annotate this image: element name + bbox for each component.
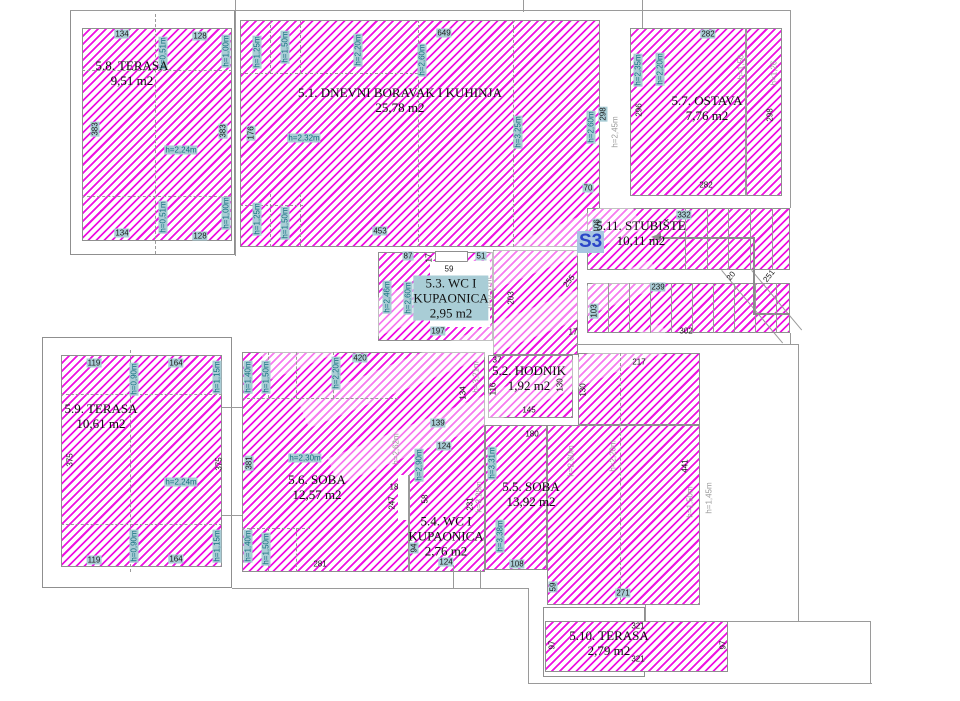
dimension-label: 128 <box>192 32 207 41</box>
height-label: h=1,40m <box>244 529 253 562</box>
room-title-line: 12,57 m2 <box>288 487 345 502</box>
room-title-line: 5.10. TERASA <box>569 628 649 643</box>
dimension-label: 87 <box>403 252 414 261</box>
height-label: h=3,28m <box>475 481 484 512</box>
plan-line <box>692 283 693 333</box>
plan-line <box>300 20 301 73</box>
height-label: h=3,21m <box>472 361 481 392</box>
height-label: h=1,40m <box>244 360 253 393</box>
plan-line <box>222 407 242 408</box>
plan-line <box>232 588 528 589</box>
dimension-label: 298 <box>599 106 608 121</box>
room-title-line: KUPAONICA <box>408 529 483 544</box>
dimension-label: 296 <box>635 103 644 116</box>
room-title: 5.7. OSTAVA7,76 m2 <box>671 93 742 123</box>
dimension-label: 17 <box>569 328 578 337</box>
plan-line <box>707 208 708 270</box>
plan-line <box>296 352 297 398</box>
room-title-line: 5.3. WC I <box>413 276 488 291</box>
height-label: h=2,62m <box>392 433 401 464</box>
plan-line <box>222 515 242 516</box>
height-label: h=2,46m <box>383 280 392 313</box>
dimension-label: 139 <box>430 419 445 428</box>
room-title-line: 5.2. HODNIK <box>492 363 566 378</box>
plan-line <box>296 528 297 572</box>
height-label: h=3,25m <box>514 115 523 148</box>
room-title-line: 9,51 m2 <box>95 73 168 88</box>
dimension-label: 17 <box>425 254 434 263</box>
room-title: 5.5. SOBA13,92 m2 <box>502 479 559 509</box>
plan-line <box>798 344 799 621</box>
plan-line <box>745 28 747 196</box>
dimension-label: 383 <box>219 123 228 138</box>
room-title-line: 2,79 m2 <box>569 643 649 658</box>
white-patch <box>398 475 408 520</box>
plan-line <box>645 605 646 621</box>
plan-line <box>753 237 755 313</box>
dimension-label: 298 <box>766 108 775 121</box>
dimension-label: 302 <box>679 327 692 336</box>
dimension-label: 18 <box>390 483 399 492</box>
room-title-line: 5.9. TERASA <box>64 401 137 416</box>
dimension-label: 51 <box>476 252 487 261</box>
height-label: h=1,45m <box>705 482 714 513</box>
dimension-label: 130 <box>579 383 588 396</box>
plan-line <box>82 196 232 197</box>
room-title: 5.1. DNEVNI BORAVAK I KUHINJA25,78 m2 <box>298 85 502 115</box>
height-label: h=2,20m <box>354 33 363 66</box>
plan-line <box>61 524 222 525</box>
dimension-label: 20 <box>725 270 738 283</box>
plan-line <box>523 0 524 12</box>
dimension-label: 217 <box>632 358 645 367</box>
plan-line <box>750 208 751 270</box>
plan-line <box>608 283 609 333</box>
plan-line <box>728 208 729 270</box>
room-title-line: 2,95 m2 <box>413 306 488 321</box>
dimension-label: 124 <box>438 558 453 567</box>
height-label: h=2,32m <box>287 134 320 143</box>
room-title-line: 5.8. TERASA <box>95 58 168 73</box>
room-title-line: 10,11 m2 <box>596 233 685 248</box>
plan-line <box>642 0 643 28</box>
white-patch <box>435 251 468 262</box>
dimension-label: 134 <box>114 30 129 39</box>
room-title-line: 5.1. DNEVNI BORAVAK I KUHINJA <box>298 85 502 100</box>
dimension-label: 231 <box>466 497 475 510</box>
plan-line <box>753 313 790 315</box>
height-label: h=2,60m <box>567 445 576 476</box>
plan-line <box>270 194 271 247</box>
room-title-line: 10,61 m2 <box>64 416 137 431</box>
height-label: h=1,50m <box>281 206 290 239</box>
height-label: h=2,60m <box>587 110 596 143</box>
height-label: h=0,90m <box>130 529 139 562</box>
dimension-label: 381 <box>245 455 254 470</box>
room-title: 5.2. HODNIK1,92 m2 <box>492 363 566 393</box>
height-label: h=1,50m <box>686 486 695 517</box>
plan-line <box>270 20 271 73</box>
height-label: h=2,20m <box>332 356 341 389</box>
dimension-label: 649 <box>436 29 451 38</box>
dimension-label: 271 <box>615 589 630 598</box>
dimension-label: 134 <box>114 229 129 238</box>
room-title: 5.6. SOBA12,57 m2 <box>288 472 345 502</box>
dimension-label: 441 <box>681 459 690 472</box>
height-label: h=1,50m <box>262 532 271 565</box>
height-label: h=2,20m <box>656 52 665 85</box>
plan-line <box>528 683 872 684</box>
height-label: h=1,26 <box>770 61 779 86</box>
height-label: h=2,60m <box>418 43 427 76</box>
floor-plan-canvas: S3 134128h=0,51mh=1,00m383383h=2,24m1341… <box>0 0 960 701</box>
room-title-line: 5.5. SOBA <box>502 479 559 494</box>
height-label: h=3,31m <box>488 446 497 479</box>
dimension-label: 70 <box>583 184 594 193</box>
room-title: 5.9. TERASA10,61 m2 <box>64 401 137 431</box>
height-label: h=1,25m <box>253 35 262 68</box>
dimension-label: 59 <box>549 582 558 593</box>
plan-line <box>242 398 398 399</box>
dimension-label: 119 <box>87 556 102 565</box>
room-title-line: 5.11. STUBIŠTE <box>596 218 685 233</box>
height-label: h=2,24m <box>164 478 197 487</box>
dimension-label: 282 <box>700 30 715 39</box>
dimension-label: 239 <box>650 283 665 292</box>
plan-line <box>734 283 735 333</box>
dimension-label: 281 <box>313 560 326 569</box>
height-label: h=1,00m <box>222 34 231 67</box>
dimension-label: 119 <box>87 359 102 368</box>
height-label: h=2,60m <box>404 281 413 314</box>
dimension-label: 197 <box>430 327 445 336</box>
room-title: 5.3. WC IKUPAONICA2,95 m2 <box>413 276 488 321</box>
room-title-line: 7,76 m2 <box>671 108 742 123</box>
plan-line <box>629 283 630 333</box>
plan-line <box>575 344 798 345</box>
height-label: h=1,50m <box>281 30 290 63</box>
dimension-label: 103 <box>590 303 599 318</box>
plan-line <box>755 283 756 333</box>
height-label: h=2,30m <box>288 454 321 463</box>
plan-line <box>528 588 529 684</box>
plan-line <box>671 283 672 333</box>
hatched-region <box>61 355 222 567</box>
room-title: 5.11. STUBIŠTE10,11 m2 <box>596 218 685 248</box>
dimension-label: 247 <box>388 496 397 509</box>
dimension-label: 176 <box>247 125 256 140</box>
height-label: h=0,90m <box>130 362 139 395</box>
dimension-label: 203 <box>507 291 516 304</box>
plan-line <box>728 621 870 622</box>
plan-line <box>240 205 303 206</box>
dimension-label: 420 <box>352 354 367 363</box>
height-label: h=1,00m <box>222 196 231 229</box>
dimension-label: 453 <box>372 227 387 236</box>
room-title-line: 25,78 m2 <box>298 100 502 115</box>
plan-line <box>620 353 621 605</box>
height-label: h=2,45m <box>611 116 620 147</box>
room-title-line: 5.4. WC I <box>408 514 483 529</box>
dimension-label: 59 <box>445 265 454 274</box>
dimension-label: 124 <box>436 442 451 451</box>
plan-line <box>235 0 236 256</box>
dimension-label: 58 <box>421 495 430 504</box>
dimension-label: 251 <box>761 268 776 284</box>
height-label: h=0,51m <box>159 200 168 233</box>
unit-label: S3 <box>577 231 604 253</box>
room-title-line: 5.6. SOBA <box>288 472 345 487</box>
dimension-label: 282 <box>699 181 712 190</box>
height-label: h=2,35m <box>634 53 643 86</box>
plan-line <box>453 565 454 588</box>
height-label: h=1,25m <box>253 202 262 235</box>
height-label: h=2,20m <box>609 440 618 471</box>
dimension-label: 180 <box>525 430 538 439</box>
plan-line <box>240 73 418 74</box>
room-title-line: KUPAONICA <box>413 291 488 306</box>
plan-line <box>870 621 871 683</box>
dimension-label: 97 <box>719 641 728 650</box>
plan-line <box>776 283 777 333</box>
height-label: h=1,15m <box>213 360 222 393</box>
height-label: h=1,50m <box>262 360 271 393</box>
plan-line <box>713 283 714 333</box>
dimension-label: 108 <box>509 560 524 569</box>
plan-line <box>70 10 790 11</box>
plan-line <box>480 570 481 588</box>
height-label: h=1,50 <box>737 55 746 80</box>
plan-line <box>155 14 156 254</box>
dimension-label: 128 <box>192 232 207 241</box>
dimension-label: 375 <box>215 457 224 470</box>
dimension-label: 383 <box>91 121 100 136</box>
room-title: 5.4. WC IKUPAONICA2,76 m2 <box>408 514 483 559</box>
dimension-label: 164 <box>168 359 183 368</box>
plan-line <box>790 10 791 208</box>
room-title: 5.10. TERASA2,79 m2 <box>569 628 649 658</box>
height-label: h=3,38m <box>496 519 505 552</box>
plan-line <box>772 208 773 270</box>
plan-line <box>61 394 222 395</box>
room-title: 5.8. TERASA9,51 m2 <box>95 58 168 88</box>
room-title-line: 2,76 m2 <box>408 544 483 559</box>
height-label: h=2,90m <box>415 448 424 481</box>
dimension-label: 97 <box>548 641 557 650</box>
dimension-label: 375 <box>66 453 75 466</box>
room-title-line: 13,92 m2 <box>502 494 559 509</box>
dimension-label: 145 <box>522 406 535 415</box>
dimension-label: 164 <box>168 555 183 564</box>
height-label: h=1,15m <box>213 529 222 562</box>
room-title-line: 5.7. OSTAVA <box>671 93 742 108</box>
height-label: h=2,24m <box>164 146 197 155</box>
room-title-line: 1,92 m2 <box>492 378 566 393</box>
plan-line <box>300 194 301 247</box>
dimension-label: 134 <box>459 386 468 399</box>
